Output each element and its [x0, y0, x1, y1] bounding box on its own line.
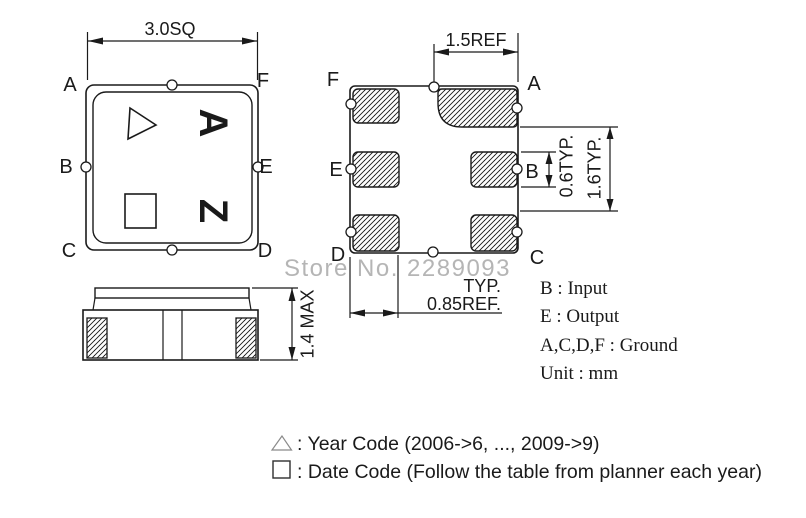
- top-view-pin-f: F: [257, 70, 269, 92]
- top-view-pin-c: C: [62, 240, 76, 262]
- bottom-view-pin-a: A: [527, 73, 541, 95]
- top-view-pin-e: E: [259, 156, 272, 178]
- side-view-pad-right: [236, 318, 256, 358]
- dim-arrow-right: [242, 38, 257, 45]
- bottom-view-pin-d: D: [331, 244, 345, 266]
- dim-1p6typ-label: 1.6TYP.: [584, 137, 604, 200]
- terminal-legend: B : Input E : Output A,C,D,F : Ground Un…: [540, 278, 678, 384]
- dim-0p6typ-label: 0.6TYP.: [556, 135, 576, 198]
- package-drawing-page: Store No. 2289093 3.0SQ A Z A F B E: [0, 0, 806, 518]
- dim-size-label: 3.0SQ: [144, 19, 195, 39]
- date-code-square-mark: [125, 194, 156, 228]
- dim-1p5ref: 1.5REF: [434, 30, 518, 82]
- dim-1p5ref-label: 1.5REF: [445, 30, 506, 50]
- side-view-lid: [95, 288, 249, 298]
- date-code-square-icon: [273, 461, 290, 478]
- bottom-view-pin-b: B: [525, 161, 538, 183]
- package-drawing: Store No. 2289093 3.0SQ A Z A F B E: [0, 0, 806, 518]
- pad-c: [471, 215, 517, 251]
- side-view-body: [83, 310, 258, 360]
- dim-1p4max: 1.4 MAX: [252, 288, 317, 360]
- top-view-size-dimension: 3.0SQ: [88, 19, 258, 80]
- year-code-text: : Year Code (2006->6, ..., 2009->9): [297, 433, 599, 455]
- year-code-triangle-mark: [128, 108, 156, 139]
- terminal-legend-ground: A,C,D,F : Ground: [540, 335, 678, 356]
- marking-letter-2: Z: [191, 199, 235, 223]
- pad-b: [471, 152, 517, 187]
- top-view-pin-b: B: [59, 156, 72, 178]
- pad-f: [353, 89, 399, 123]
- bottom-view-pin-c: C: [530, 247, 544, 269]
- dim-0p85ref-label: 0.85REF.: [427, 294, 501, 314]
- bottom-view-pads: [353, 89, 517, 251]
- bottom-view-pin-f: F: [327, 69, 339, 91]
- top-view: 3.0SQ A Z A F B E C D: [59, 19, 272, 262]
- marking-legend: : Year Code (2006->6, ..., 2009->9) : Da…: [272, 433, 762, 483]
- side-view-pad-left: [87, 318, 107, 358]
- dim-1p4max-label: 1.4 MAX: [297, 289, 317, 358]
- terminal-legend-input: B : Input: [540, 278, 608, 299]
- date-code-text: : Date Code (Follow the table from plann…: [297, 461, 762, 483]
- dim-typ-label: TYP.: [463, 276, 501, 296]
- pad-d: [353, 215, 399, 251]
- top-view-pin-a: A: [63, 74, 77, 96]
- dim-arrow-left: [88, 38, 103, 45]
- top-view-pin-d: D: [258, 240, 272, 262]
- year-code-triangle-icon: [272, 436, 292, 450]
- marking-letter-1: A: [191, 109, 235, 138]
- bottom-view-pin-e: E: [329, 159, 342, 181]
- pad-a: [438, 89, 517, 127]
- terminal-legend-unit: Unit : mm: [540, 363, 618, 384]
- terminal-legend-output: E : Output: [540, 306, 620, 327]
- side-view: 1.4 MAX: [83, 288, 317, 360]
- pad-e: [353, 152, 399, 187]
- top-view-notches: [81, 80, 263, 255]
